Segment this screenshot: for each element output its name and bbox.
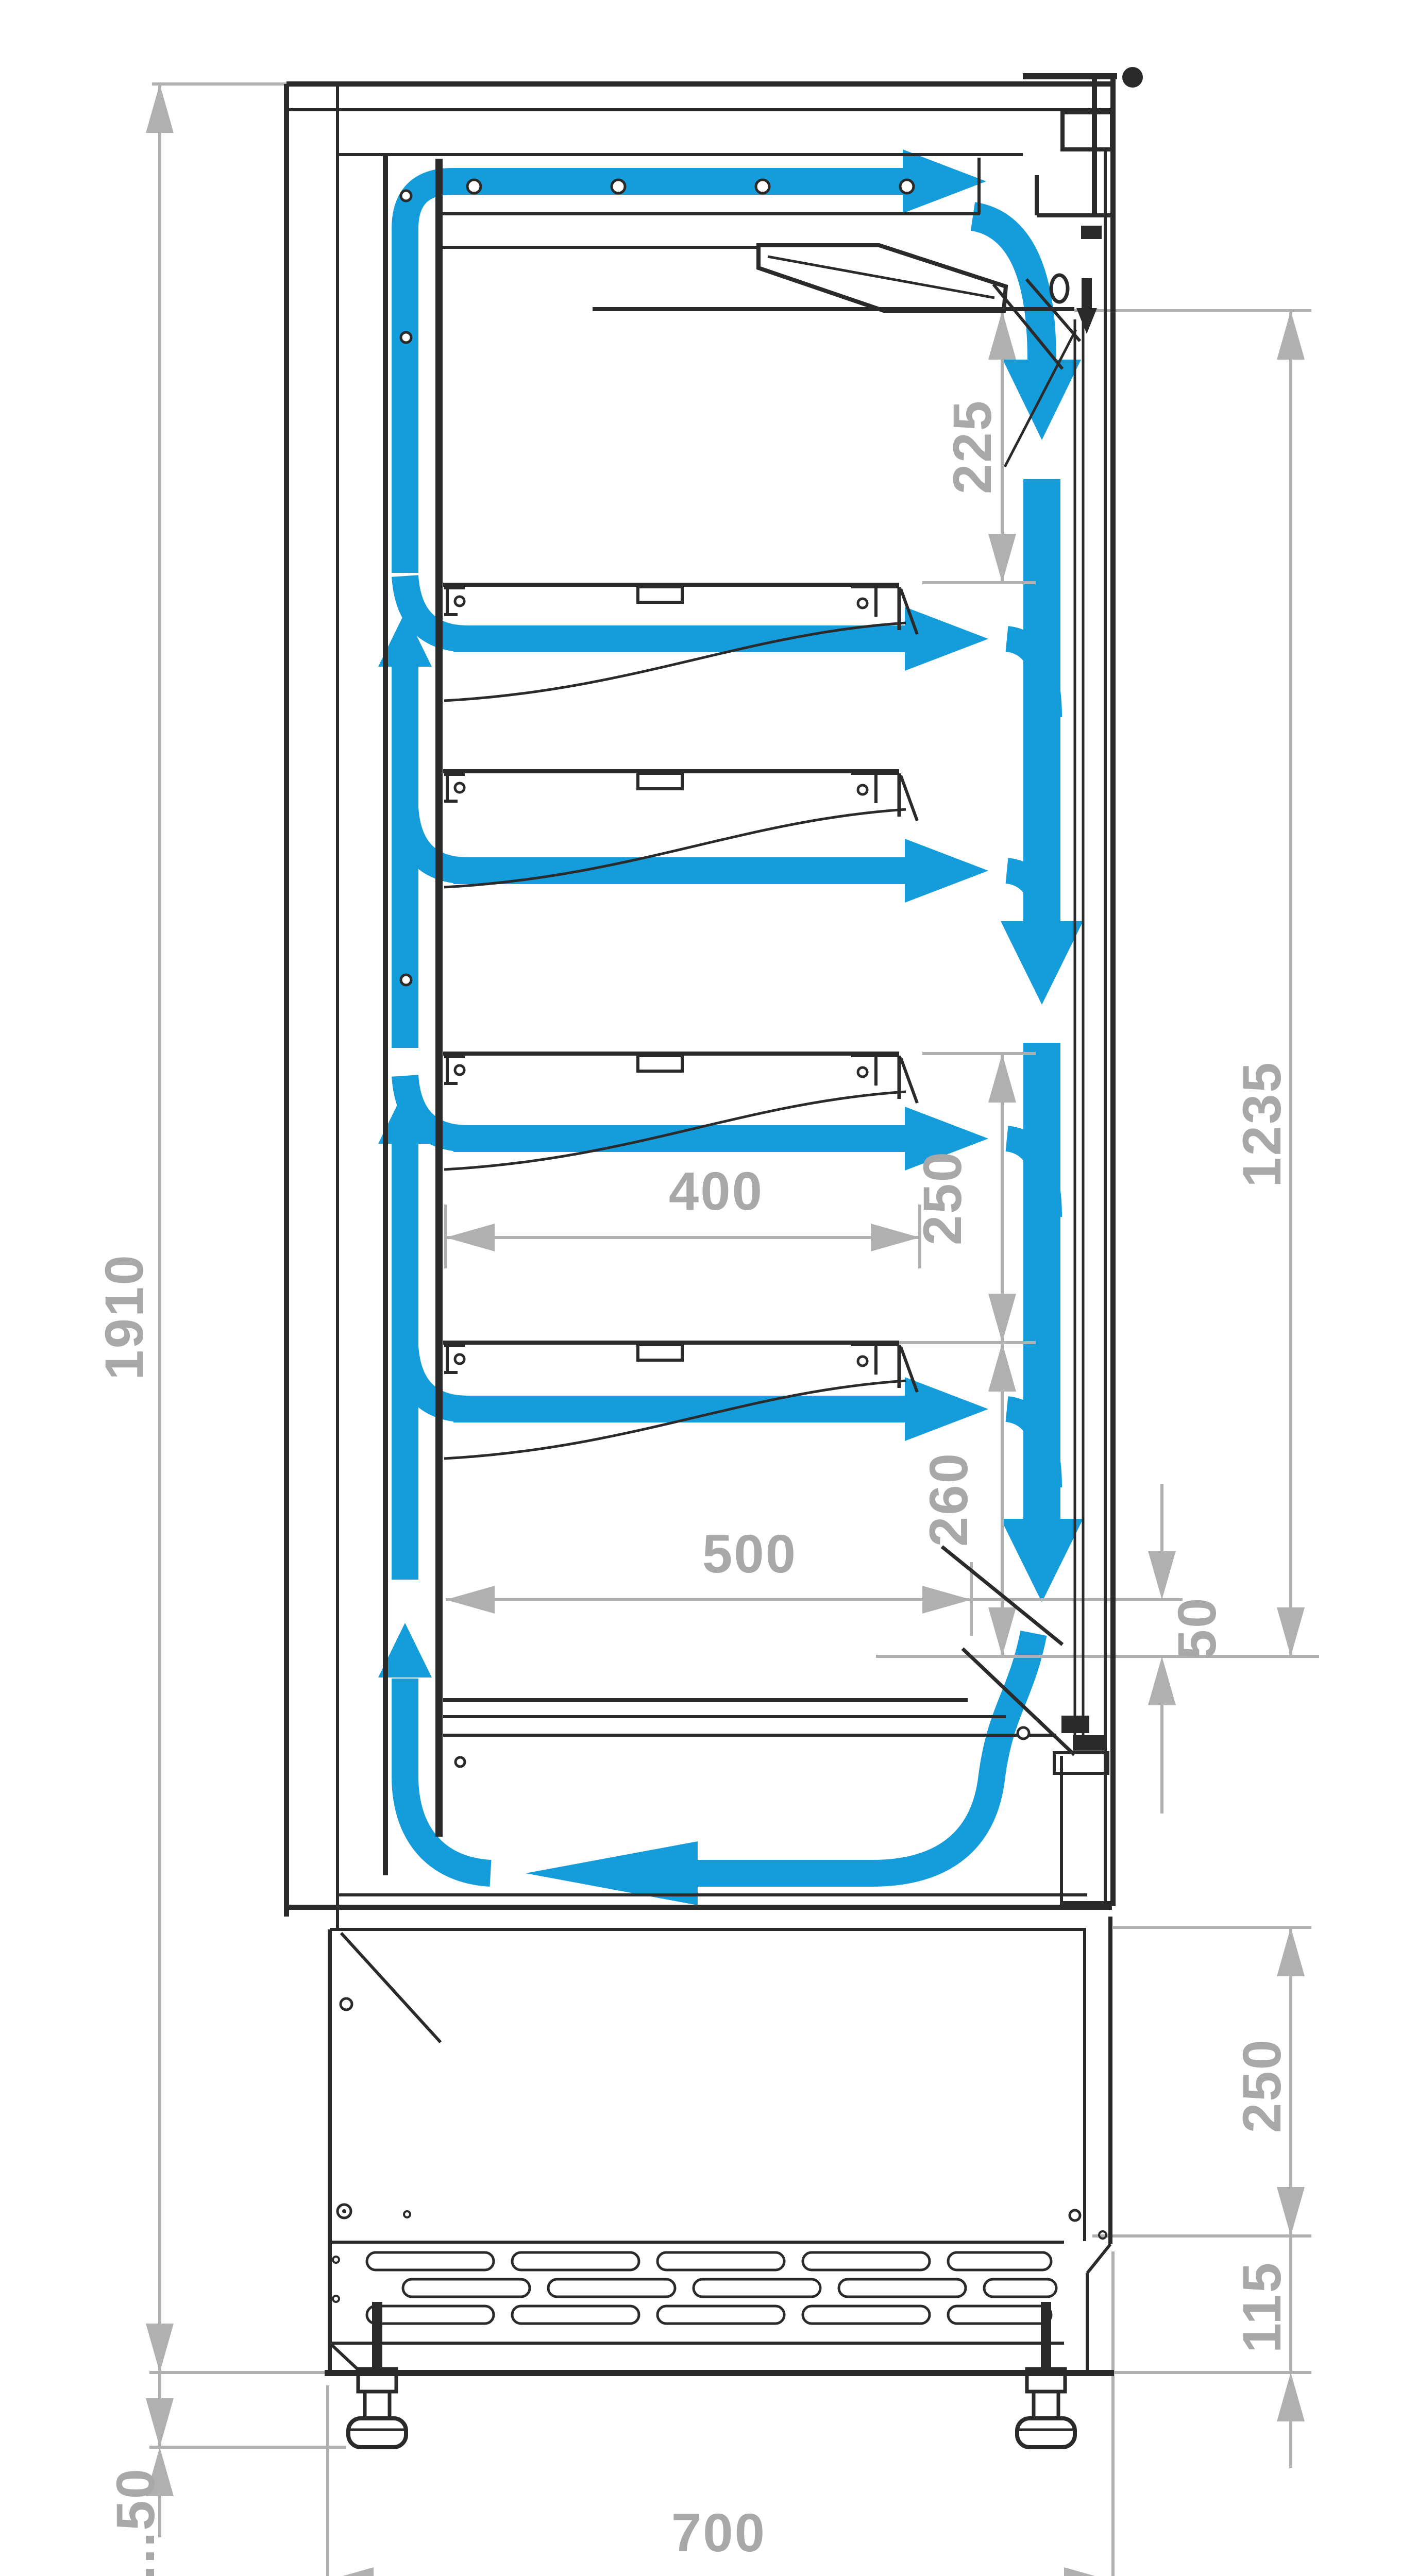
dimension-label-foot-adjust: 30...50 — [106, 2467, 166, 2576]
dimension-base-height: 250 — [1232, 1927, 1305, 2236]
shelf-3 — [443, 1054, 917, 1170]
dimension-vent-height: 115 — [1232, 2236, 1305, 2468]
shelf2-airflow — [405, 808, 1049, 949]
dimension-label-outlet-gap: 50 — [1167, 1597, 1227, 1660]
right-arrow-icon — [903, 149, 986, 213]
dimension-label-vent-height: 115 — [1232, 2261, 1292, 2353]
vent-grille — [330, 2242, 1064, 2373]
back-duct-up-flow — [378, 149, 986, 1873]
down-arrow-icon — [1003, 360, 1081, 440]
dimension-label-bottom-gap: 260 — [919, 1452, 979, 1547]
dimension-label-deck-depth: 500 — [702, 1524, 797, 1584]
dimension-label-base-height: 250 — [1232, 2038, 1292, 2133]
down-arrow-icon — [1001, 1519, 1083, 1602]
dimension-label-overall-depth: 700 — [671, 2503, 766, 2563]
dimension-label-shelf-spacing: 250 — [913, 1150, 973, 1245]
dimension-overall-depth: 700 — [325, 2503, 1113, 2576]
technical-drawing-page: 1910 30...50 700 1235 225 — [0, 0, 1417, 2576]
base-unit — [286, 1895, 1114, 2373]
bottom-return-flow — [526, 1633, 1034, 1905]
dimension-outlet-gap: 50 — [1148, 1484, 1227, 1814]
dimension-shelf-depth: 400 — [446, 1161, 920, 1251]
dimension-shelf-spacing: 250 — [913, 1054, 1016, 1343]
dimension-label-canopy-gap: 225 — [942, 399, 1003, 494]
dimensions: 1910 30...50 700 1235 225 — [94, 84, 1319, 2576]
cabinet-section-diagram: 1910 30...50 700 1235 225 — [0, 0, 1417, 2576]
hinge-knuckle — [1122, 67, 1143, 88]
down-arrow-icon — [1001, 921, 1083, 1005]
dimension-label-shelf-depth: 400 — [669, 1161, 764, 1222]
dimension-overall-height: 1910 — [94, 84, 174, 2447]
dimension-canopy-gap: 225 — [942, 311, 1016, 583]
dimension-opening-height: 1235 — [1232, 311, 1305, 1656]
dimension-label-opening-height: 1235 — [1232, 1061, 1292, 1188]
dimension-label-overall-height: 1910 — [94, 1253, 155, 1380]
